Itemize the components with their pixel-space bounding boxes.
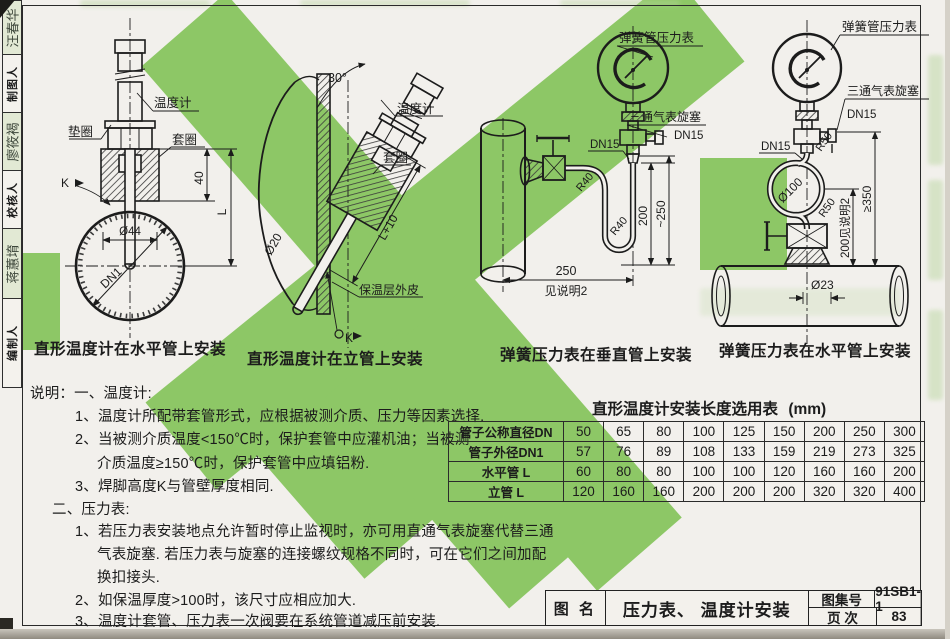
cell: 400 bbox=[884, 482, 924, 502]
cell: 108 bbox=[684, 442, 724, 462]
cell: 133 bbox=[724, 442, 764, 462]
riser-thermometer-drawing: L+10 Ø20 bbox=[243, 50, 468, 348]
label-thermometer: 温度计 bbox=[397, 101, 435, 116]
page-right-edge bbox=[945, 0, 950, 639]
table-unit: (mm) bbox=[788, 401, 826, 418]
cell: 120 bbox=[564, 482, 604, 502]
page-number-label: 页 次 bbox=[809, 608, 877, 625]
cell: 80 bbox=[644, 422, 684, 442]
bleed-smudge bbox=[928, 55, 943, 165]
dim-dia100: Ø100 bbox=[775, 175, 806, 206]
label-ferrule: 套圈 bbox=[172, 132, 197, 147]
cell: 80 bbox=[644, 462, 684, 482]
dim-250v: ~250 bbox=[654, 200, 668, 227]
caption-thermometer-riser: 直形温度计在立管上安装 bbox=[247, 347, 423, 369]
checker-label-cell: 校核人 bbox=[2, 170, 22, 230]
page-bottom-edge bbox=[0, 629, 950, 639]
cell: 76 bbox=[604, 442, 644, 462]
caption-thermometer-horizontal: 直形温度计在水平管上安装 bbox=[34, 337, 226, 359]
dim-250: 250 bbox=[556, 264, 577, 278]
cell: 320 bbox=[844, 482, 884, 502]
gauge-horizontal-drawing bbox=[712, 20, 929, 344]
compiler-label: 编制人 bbox=[4, 325, 20, 361]
scan-corner-mark bbox=[0, 0, 15, 18]
cell: 125 bbox=[724, 422, 764, 442]
cell: 50 bbox=[564, 422, 604, 442]
checker-label: 校核人 bbox=[4, 182, 20, 218]
cell: 160 bbox=[644, 482, 684, 502]
cell: 120 bbox=[764, 462, 804, 482]
dim-350: ≥350 bbox=[860, 185, 874, 212]
atlas-number: 91SB1-1 bbox=[875, 591, 921, 607]
drafter-label-cell: 制图人 bbox=[2, 54, 22, 114]
dim-dn15: DN15 bbox=[590, 139, 619, 151]
drawing-name-label: 图 名 bbox=[546, 591, 606, 625]
table-row: 水平管 L 60 80 80 100 100 120 160 160 200 bbox=[449, 462, 925, 482]
see-note-2: 见说明2 bbox=[545, 283, 588, 298]
diagram-gauge-vertical-pipe: 弹簧管压力表 三通气表旋塞 DN15 DN15 R40 R40 200 ~250… bbox=[463, 18, 710, 344]
caption-gauge-horizontal: 弹簧压力表在水平管上安装 bbox=[719, 339, 911, 361]
table-title-text: 直形温度计安装长度选用表 bbox=[592, 401, 778, 418]
weld-k: K bbox=[345, 331, 353, 345]
cell: 250 bbox=[844, 422, 884, 442]
dim-dn15: DN15 bbox=[847, 109, 876, 121]
table-row: 管子公称直径DN 50 65 80 100 125 150 200 250 30… bbox=[449, 422, 925, 442]
note-line: 换扣接头. bbox=[97, 566, 160, 587]
title-block: 图 名 压力表、 温度计安装 图集号 91SB1-1 页 次 83 bbox=[545, 590, 922, 626]
label-thermometer: 温度计 bbox=[154, 95, 192, 110]
cell: 320 bbox=[804, 482, 844, 502]
table-title: 直形温度计安装长度选用表 (mm) bbox=[592, 397, 826, 419]
label-bourdon-gauge: 弹簧管压力表 bbox=[842, 19, 918, 34]
dim-200-see-note: 200见说明2 bbox=[838, 198, 852, 258]
note-line: 介质温度≥150℃时，保护套管中应填铝粉. bbox=[97, 452, 369, 473]
label-three-way-cock: 三通气表旋塞 bbox=[629, 109, 701, 124]
atlas-page-cells: 图集号 91SB1-1 页 次 83 bbox=[809, 591, 921, 625]
cell: 160 bbox=[844, 462, 884, 482]
label-washer: 垫圈 bbox=[68, 124, 93, 139]
note-line: 2、如保温厚度>100时，该尺寸应相应加大. bbox=[75, 589, 356, 610]
atlas-number-label: 图集号 bbox=[809, 591, 875, 607]
dim-200: 200 bbox=[636, 206, 650, 226]
cell: 150 bbox=[764, 422, 804, 442]
cell: 273 bbox=[844, 442, 884, 462]
row-header: 立管 L bbox=[449, 482, 564, 502]
drafter-label: 制图人 bbox=[4, 66, 20, 102]
label-bourdon-gauge: 弹簧管压力表 bbox=[619, 30, 695, 45]
drawing-title: 压力表、 温度计安装 bbox=[606, 591, 809, 625]
cell: 200 bbox=[764, 482, 804, 502]
note-line: 说明：一、温度计: bbox=[30, 382, 152, 403]
dim-r40: R40 bbox=[574, 171, 596, 194]
length-selection-table: 管子公称直径DN 50 65 80 100 125 150 200 250 30… bbox=[448, 421, 925, 502]
table-row: 立管 L 120 160 160 200 200 200 320 320 400 bbox=[449, 482, 925, 502]
cell: 89 bbox=[644, 442, 684, 462]
bleed-smudge bbox=[928, 310, 943, 400]
cell: 200 bbox=[684, 482, 724, 502]
row-header: 管子外径DN1 bbox=[449, 442, 564, 462]
note-line: 2、当被测介质温度<150℃时，保护套管中应灌机油；当被测 bbox=[75, 428, 470, 449]
cell: 60 bbox=[564, 462, 604, 482]
caption-gauge-vertical: 弹簧压力表在垂直管上安装 bbox=[500, 343, 692, 365]
dim-dia44: Ø44 bbox=[119, 226, 141, 238]
cell: 100 bbox=[724, 462, 764, 482]
gauge-vertical-drawing bbox=[481, 26, 706, 292]
dim-r40: R40 bbox=[608, 215, 630, 238]
note-line: 3、温度计套管、压力表一次阀要在系统管道减压前安装. bbox=[75, 610, 440, 631]
table-row: 管子外径DN1 57 76 89 108 133 159 219 273 325 bbox=[449, 442, 925, 462]
note-line: 二、压力表: bbox=[52, 498, 130, 519]
compiler-name: 蒋蕙堉 bbox=[3, 244, 22, 283]
dim-dia23: Ø23 bbox=[811, 278, 834, 292]
note-line: 3、焊脚高度K与管壁厚度相同. bbox=[75, 475, 274, 496]
compiler-label-cell: 编制人 bbox=[2, 298, 22, 388]
cell: 160 bbox=[604, 482, 644, 502]
cell: 65 bbox=[604, 422, 644, 442]
dim-dia20: Ø20 bbox=[262, 231, 286, 258]
checker-name: 廖筱褐 bbox=[3, 122, 22, 161]
dim-dn1: DN1 bbox=[97, 264, 124, 291]
cell: 100 bbox=[684, 422, 724, 442]
cell: 200 bbox=[724, 482, 764, 502]
note-line: 气表旋塞. 若压力表与旋塞的连接螺纹规格不同时，可在它们之间加配 bbox=[97, 543, 546, 564]
row-header: 管子公称直径DN bbox=[449, 422, 564, 442]
diagram-thermometer-riser: L+10 Ø20 30° 温度计 套圈 保温层外皮 K bbox=[233, 14, 463, 360]
cell: 80 bbox=[604, 462, 644, 482]
dim-40: 40 bbox=[192, 171, 206, 185]
diagram-thermometer-horizontal-pipe: 温度计 垫圈 套圈 Ø44 DN1 40 L K bbox=[55, 16, 245, 350]
scanned-standard-drawing-page: 汪春华 制图人 廖筱褐 校核人 蒋蕙堉 编制人 bbox=[0, 0, 950, 639]
page-number: 83 bbox=[877, 608, 921, 625]
cell: 219 bbox=[804, 442, 844, 462]
label-three-way-cock: 三通气表旋塞 bbox=[847, 83, 919, 98]
dim-L: L bbox=[215, 208, 229, 215]
row-header: 水平管 L bbox=[449, 462, 564, 482]
cell: 300 bbox=[884, 422, 924, 442]
note-line: 1、温度计所配带套管形式，应根据被测介质、压力等因素选择. bbox=[75, 405, 484, 426]
cell: 200 bbox=[884, 462, 924, 482]
dim-angle-30: 30° bbox=[328, 71, 347, 85]
cell: 159 bbox=[764, 442, 804, 462]
dim-dn15: DN15 bbox=[674, 130, 703, 142]
cell: 325 bbox=[884, 442, 924, 462]
cell: 100 bbox=[684, 462, 724, 482]
label-insulation-jacket: 保温层外皮 bbox=[359, 283, 419, 297]
dim-dn15: DN15 bbox=[761, 141, 790, 153]
compiler-name-cell: 蒋蕙堉 bbox=[2, 228, 22, 300]
bleed-smudge bbox=[928, 180, 943, 280]
cell: 57 bbox=[564, 442, 604, 462]
note-line: 1、若压力表安装地点允许暂时停止监视时，亦可用直通气表旋塞代替三通 bbox=[75, 520, 554, 541]
thermometer-drawing bbox=[65, 18, 237, 338]
cell: 160 bbox=[804, 462, 844, 482]
cell: 200 bbox=[804, 422, 844, 442]
diagram-gauge-horizontal-pipe: 弹簧管压力表 三通气表旋塞 DN15 DN15 R50 R50 Ø100 200… bbox=[703, 12, 930, 350]
label-ferrule: 套圈 bbox=[383, 150, 408, 165]
weld-k: K bbox=[61, 176, 69, 190]
checker-name-cell: 廖筱褐 bbox=[2, 112, 22, 172]
